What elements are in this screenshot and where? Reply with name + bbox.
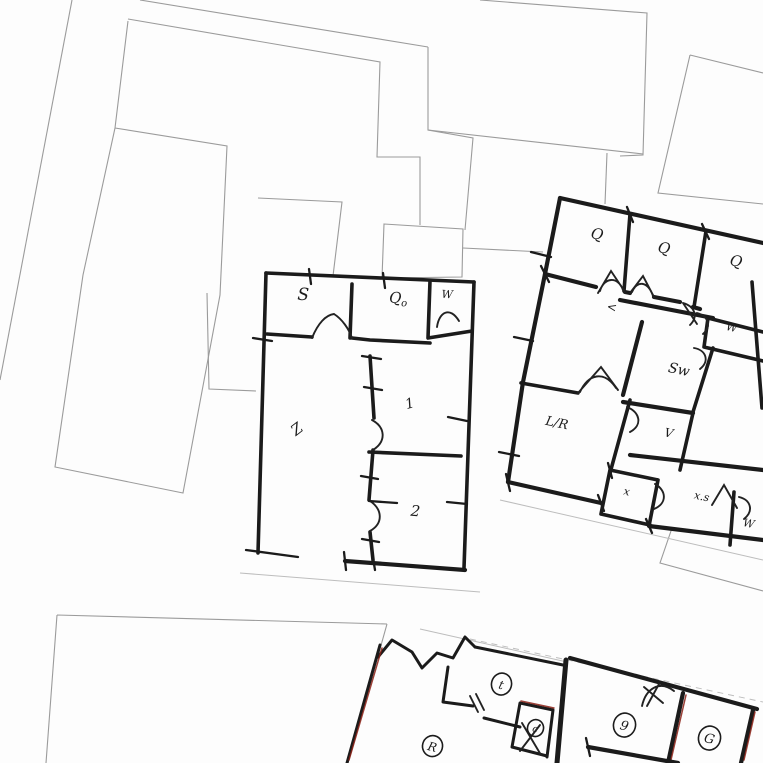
room-label-w-lower: W [742,516,757,531]
room-label-qo-main: Q [389,289,402,308]
room-label-qo-sub: o [401,298,408,309]
room-label-hall-mark: < [605,299,618,315]
floor-plan-sheet: S Qo W Z 1 2 Q Q Q < W Sw V L/R x x.s W … [0,0,763,763]
room-label-q2: Q [656,238,672,258]
room-label-xs: x.s [693,489,711,505]
left-floor-plan [246,269,474,570]
room-label-w-upper: W [725,320,740,335]
room-label-g-group: G [696,724,723,753]
room-label-nine: 9 [618,718,630,735]
room-label-g: G [702,731,716,748]
right-floor-plan [499,198,763,545]
room-label-qo: Qo [389,289,408,310]
room-label-q1: Q [589,224,605,244]
room-label-w-left: W [441,288,455,302]
room-label-z: Z [286,418,307,440]
room-label-lr: L/R [543,414,570,434]
room-label-q3: Q [728,251,744,271]
room-label-t: t [497,678,505,693]
room-label-r: R [425,739,438,755]
room-label-v: V [663,425,676,441]
room-label-sw: Sw [667,360,691,380]
room-label-x: x [622,485,632,499]
room-label-s: S [297,285,310,306]
floor-plan-canvas: S Qo W Z 1 2 Q Q Q < W Sw V L/R x x.s W … [0,0,763,763]
bottom-floor-plan [347,637,757,763]
room-label-one: 1 [404,395,417,413]
room-label-r-group: R [420,733,445,758]
room-label-nine-group: 9 [611,711,638,740]
room-label-two: 2 [409,502,421,521]
room-label-c: c [531,723,540,735]
room-label-t-group: t [489,671,514,697]
